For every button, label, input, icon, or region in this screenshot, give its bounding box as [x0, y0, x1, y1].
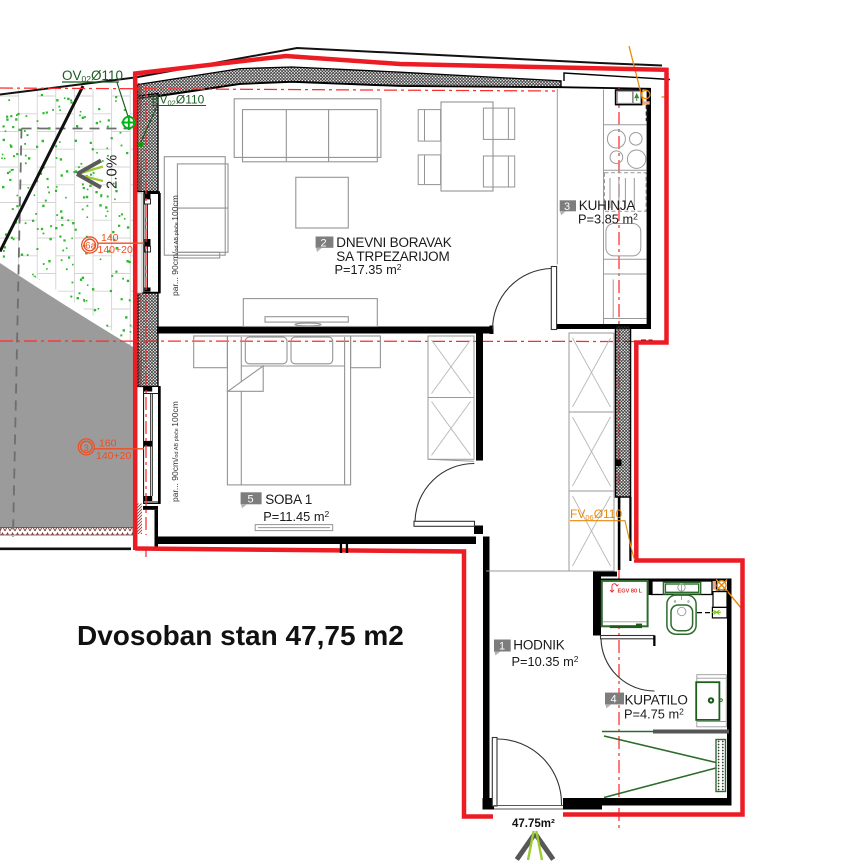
svg-text:HODNIK: HODNIK [513, 638, 564, 653]
svg-text:3: 3 [564, 201, 570, 213]
svg-text:3: 3 [84, 443, 89, 454]
svg-text:P=4.75 m2: P=4.75 m2 [624, 706, 684, 721]
svg-text:P=10.35 m2: P=10.35 m2 [512, 654, 579, 669]
svg-text:par... 90cm/od AB ploče 100cm: par... 90cm/od AB ploče 100cm [170, 401, 180, 502]
svg-text:Dvosoban stan 47,75 m2: Dvosoban stan 47,75 m2 [77, 620, 404, 651]
svg-text:6a: 6a [85, 241, 96, 252]
svg-text:FV06Ø110: FV06Ø110 [570, 507, 622, 522]
svg-text:SOBA 1: SOBA 1 [265, 492, 312, 507]
svg-text:1: 1 [499, 641, 505, 653]
svg-text:160: 160 [99, 438, 117, 450]
svg-text:140: 140 [101, 232, 119, 244]
svg-text:KUPATILO: KUPATILO [625, 692, 688, 707]
svg-text:par... 90cm/od AB ploče 100cm: par... 90cm/od AB ploče 100cm [170, 195, 180, 296]
svg-text:5: 5 [248, 494, 254, 506]
svg-text:P=11.45 m2: P=11.45 m2 [263, 509, 329, 524]
svg-text:140+20: 140+20 [98, 244, 133, 256]
svg-text:4: 4 [611, 693, 617, 705]
svg-text:EGV 80 L: EGV 80 L [618, 589, 643, 595]
svg-text:DNEVNI BORAVAK: DNEVNI BORAVAK [336, 235, 451, 250]
svg-text:P=3.85 m2: P=3.85 m2 [578, 212, 638, 227]
svg-text:2.0%: 2.0% [104, 155, 121, 189]
svg-text:2: 2 [321, 237, 327, 249]
svg-text:P=17.35 m2: P=17.35 m2 [335, 262, 402, 277]
svg-text:140+20: 140+20 [96, 450, 131, 462]
svg-text:47.75m²: 47.75m² [512, 818, 555, 830]
